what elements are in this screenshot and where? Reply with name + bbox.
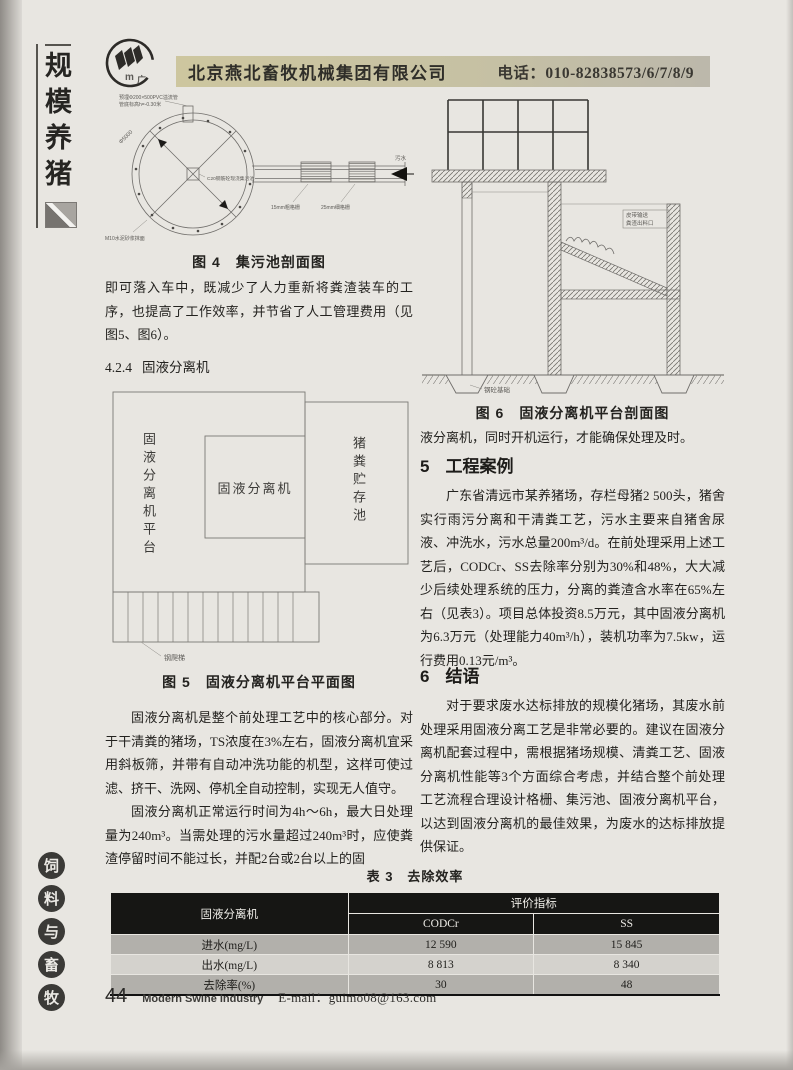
section-number: 5: [420, 457, 429, 476]
paragraph-separator-core: 固液分离机是整个前处理工艺中的核心部分。对于干清粪的猪场，TS浓度在3%左右，固…: [105, 706, 413, 800]
heading-4-2-4: 4.2.4固液分离机: [105, 356, 210, 376]
fine-grate: [349, 162, 375, 182]
page-number: 44: [105, 985, 127, 1008]
heading-section5: 5工程案例: [420, 452, 513, 477]
sidebar-char: 模: [45, 84, 91, 120]
removal-efficiency-table: 固液分离机 评价指标 CODCr SS 进水(mg/L) 12 590 15 8…: [110, 892, 720, 996]
platform-deck: [432, 170, 606, 182]
foundation-label: 钢砼基础: [484, 385, 511, 394]
table-row: 出水(mg/L) 8 813 8 340: [111, 955, 720, 975]
table-corner-header: 固液分离机: [111, 893, 349, 935]
right-column: [667, 204, 680, 375]
figure4-collection-pit-drawing: 预埋Φ200×500PVC溢流管 管底标高h=-0.30米 Φ5000 C20钢…: [103, 92, 415, 252]
note-line2: 粪渣出料口: [626, 219, 654, 227]
ladder-label: 钢爬梯: [164, 653, 185, 662]
cell-ss: 8 340: [534, 955, 720, 975]
heading-section6: 6结语: [420, 662, 479, 687]
scan-edge-bottom: [0, 1050, 793, 1070]
table-group-header: 评价指标: [348, 893, 720, 914]
figure5-platform-plan-drawing: 钢爬梯 固液分离机平台 固液分离机 猪粪贮存池: [103, 384, 415, 666]
paragraph-case-study: 广东省清远市某养猪场，存栏母猪2 500头，猪舍实行雨污分离和干清粪工艺，污水主…: [420, 484, 725, 672]
company-name: 北京燕北畜牧机械集团有限公司: [188, 59, 447, 84]
paragraph-conclusion: 对于要求废水达标排放的规模化猪场，其废水前处理采用固液分离工艺是非常必要的。建议…: [420, 694, 725, 859]
cell-codcr: 12 590: [348, 935, 534, 955]
cell-ss: 48: [534, 975, 720, 996]
svg-text:m: m: [125, 72, 134, 83]
cell-ss: 15 845: [534, 935, 720, 955]
paragraph-loading-continuation: 即可落入车中，既减少了人力重新将粪渣装车的工序，也提高了工作效率，并节省了人工管…: [105, 276, 413, 347]
sidebar-section-label: 规 模 养 猪: [36, 44, 91, 228]
page-footer: 44 Modern Swine Industry E-mail：guimo08@…: [105, 985, 437, 1008]
row-label: 出水(mg/L): [111, 955, 349, 975]
figure6-caption: 图 6 固液分离机平台剖面图: [420, 403, 725, 423]
journal-char-badge: 与: [38, 918, 65, 945]
pit-circle: [132, 106, 254, 235]
pipe-note-line1: 预埋Φ200×500PVC溢流管: [119, 94, 178, 101]
paragraph-continuation: 液分离机，同时开机运行，才能确保处理及时。: [420, 426, 725, 450]
journal-name: Modern Swine Industry: [142, 993, 263, 1005]
company-phone: 电话：010-82838573/6/7/8/9: [497, 61, 694, 83]
center-note: C20钢筋砼现浇集污池: [207, 175, 254, 182]
storage-pool-label: 猪粪贮存池: [349, 436, 368, 526]
sloped-chute: [561, 242, 667, 296]
heading-number: 4.2.4: [105, 360, 132, 375]
inlet-label: 污水: [395, 154, 407, 162]
diameter-label: Φ5000: [118, 129, 134, 145]
section-title: 结语: [445, 667, 479, 686]
heading-title: 固液分离机: [142, 360, 210, 375]
machine-label: 固液分离机: [205, 478, 305, 497]
cell-codcr: 8 813: [348, 955, 534, 975]
table3-title: 表 3 去除效率: [110, 866, 720, 885]
note-line1: 皮带输送: [626, 211, 649, 219]
ladder-band: [113, 592, 319, 642]
scan-edge-right: [786, 0, 793, 1070]
section-number: 6: [420, 667, 429, 686]
section-title: 工程案例: [445, 457, 513, 476]
platform-label: 固液分离机平台: [139, 432, 158, 558]
table-col-header-codcr: CODCr: [348, 914, 534, 935]
coarse-grate: [301, 162, 331, 182]
left-column: [462, 182, 472, 375]
header-banner: 北京燕北畜牧机械集团有限公司 电话：010-82838573/6/7/8/9: [176, 56, 710, 87]
coarse-grate-label: 15mm粗格栅: [271, 204, 300, 211]
journal-char-badge: 畜: [38, 951, 65, 978]
table3-block: 表 3 去除效率 固液分离机 评价指标 CODCr SS 进水(mg/L) 12…: [110, 866, 720, 996]
wall-note: M10水泥砂浆抹面: [105, 235, 145, 242]
sidebar-char: 猪: [45, 156, 91, 192]
diagonal-slash-icon: [45, 202, 77, 228]
middle-column: [548, 182, 561, 375]
chamber-slab: [561, 290, 680, 299]
journal-page: 规 模 养 猪 饲 料 与 畜 牧 m 广 北京燕北畜牧机械集团有限公司 电话：…: [0, 0, 793, 1070]
sidebar-char: 规: [45, 48, 91, 84]
railing-grid: [448, 100, 588, 170]
scan-edge-left: [0, 0, 22, 1070]
sidebar-journal-name: 饲 料 与 畜 牧: [38, 852, 65, 1011]
row-label: 进水(mg/L): [111, 935, 349, 955]
paragraph-separator-runtime: 固液分离机正常运行时间为4h～6h，最大日处理量为240m³。当需处理的污水量超…: [105, 800, 413, 871]
fine-grate-label: 25mm细格栅: [321, 204, 350, 211]
editor-email: E-mail：guimo08@163.com: [278, 987, 436, 1006]
svg-text:广: 广: [137, 74, 146, 85]
company-logo-icon: m 广: [101, 36, 159, 99]
figure5-caption: 图 5 固液分离机平台平面图: [105, 672, 413, 692]
journal-char-badge: 料: [38, 885, 65, 912]
figure4-caption: 图 4 集污池剖面图: [105, 252, 413, 272]
journal-char-badge: 牧: [38, 984, 65, 1011]
journal-char-badge: 饲: [38, 852, 65, 879]
pipe-note-line2: 管底标高h=-0.30米: [119, 101, 161, 108]
table-col-header-ss: SS: [534, 914, 720, 935]
table-row: 进水(mg/L) 12 590 15 845: [111, 935, 720, 955]
sidebar-char: 养: [45, 120, 91, 156]
ladder-rungs: [128, 592, 293, 642]
figure6-platform-section-drawing: 皮带输送 粪渣出料口 钢砼基础: [418, 92, 728, 400]
